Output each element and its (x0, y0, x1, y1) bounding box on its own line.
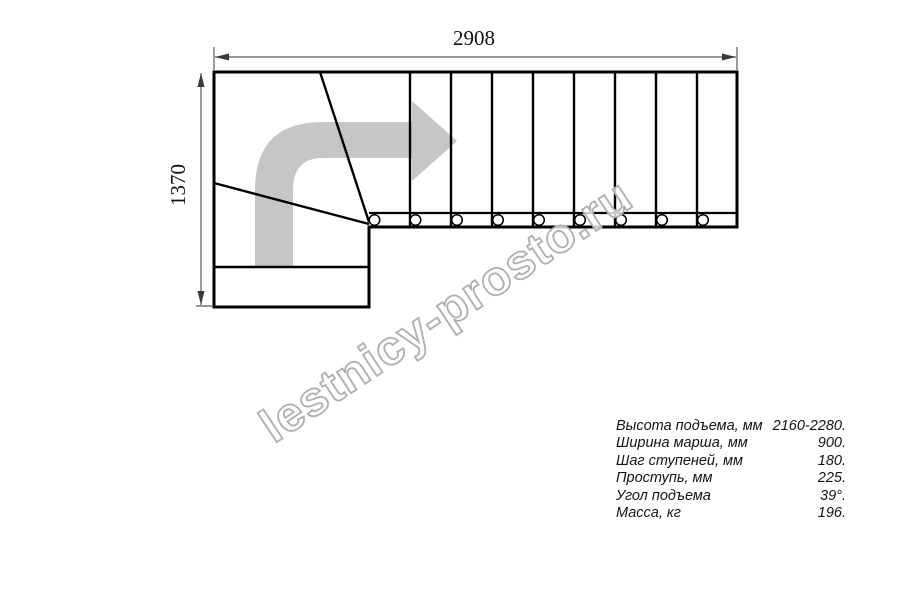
spec-row: Ширина марша, мм 900. (616, 435, 846, 452)
spec-row: Шаг ступеней, мм 180. (616, 453, 846, 470)
staircase-drawing-canvas: lestnicy-prosto.ru 2908 1370 Высота подъ… (0, 0, 900, 600)
spec-label: Высота подъема, мм (616, 418, 763, 435)
spec-value: 225. (818, 470, 846, 487)
spec-row: Высота подъема, мм 2160-2280. (616, 418, 846, 435)
dimension-left (196, 73, 213, 306)
spec-value: 180. (818, 453, 846, 470)
baluster-circle (657, 215, 668, 226)
dim-arrowhead-right-icon (722, 54, 736, 61)
spec-value: 39°. (820, 488, 846, 505)
spec-row: Масса, кг 196. (616, 505, 846, 522)
spec-value: 196. (818, 505, 846, 522)
spec-row: Проступь, мм 225. (616, 470, 846, 487)
baluster-circle (452, 215, 463, 226)
spec-label: Шаг ступеней, мм (616, 453, 743, 470)
baluster-circle (493, 215, 504, 226)
spec-label: Угол подъема (616, 488, 711, 505)
dimension-left-label: 1370 (166, 140, 188, 230)
spec-value: 900. (818, 435, 846, 452)
spec-row: Угол подъема 39°. (616, 488, 846, 505)
spec-label: Ширина марша, мм (616, 435, 748, 452)
spec-value: 2160-2280. (773, 418, 846, 435)
dim-arrowhead-up-icon (198, 73, 205, 87)
spec-label: Масса, кг (616, 505, 681, 522)
dim-arrowhead-down-icon (198, 291, 205, 305)
baluster-circle (698, 215, 709, 226)
tread-lines (410, 72, 697, 227)
dim-arrowhead-left-icon (215, 54, 229, 61)
spec-table: Высота подъема, мм 2160-2280. Ширина мар… (616, 418, 846, 522)
spec-label: Проступь, мм (616, 470, 712, 487)
baluster-circle (369, 215, 380, 226)
baluster-circle (410, 215, 421, 226)
dimension-top-label: 2908 (429, 26, 519, 51)
